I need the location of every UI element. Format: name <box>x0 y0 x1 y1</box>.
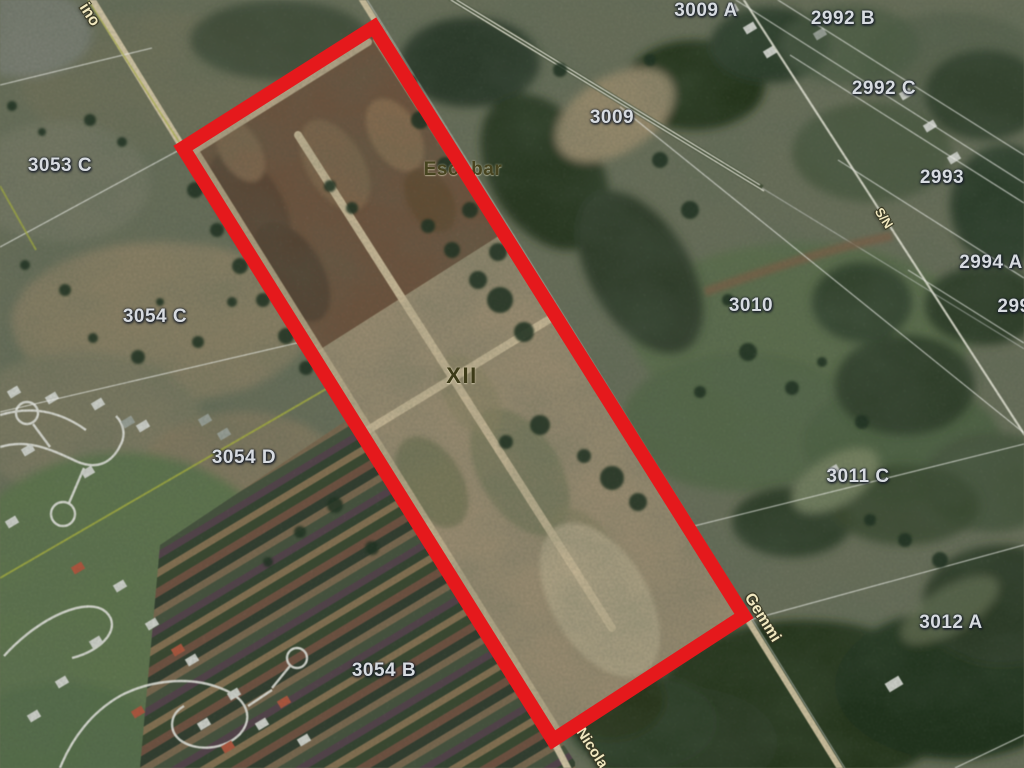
highlight-overlay <box>0 0 1024 768</box>
highlight-rectangle <box>183 27 744 740</box>
satellite-map[interactable]: 3053 C 3054 C 3054 D 3054 B 3009 A 3009 … <box>0 0 1024 768</box>
